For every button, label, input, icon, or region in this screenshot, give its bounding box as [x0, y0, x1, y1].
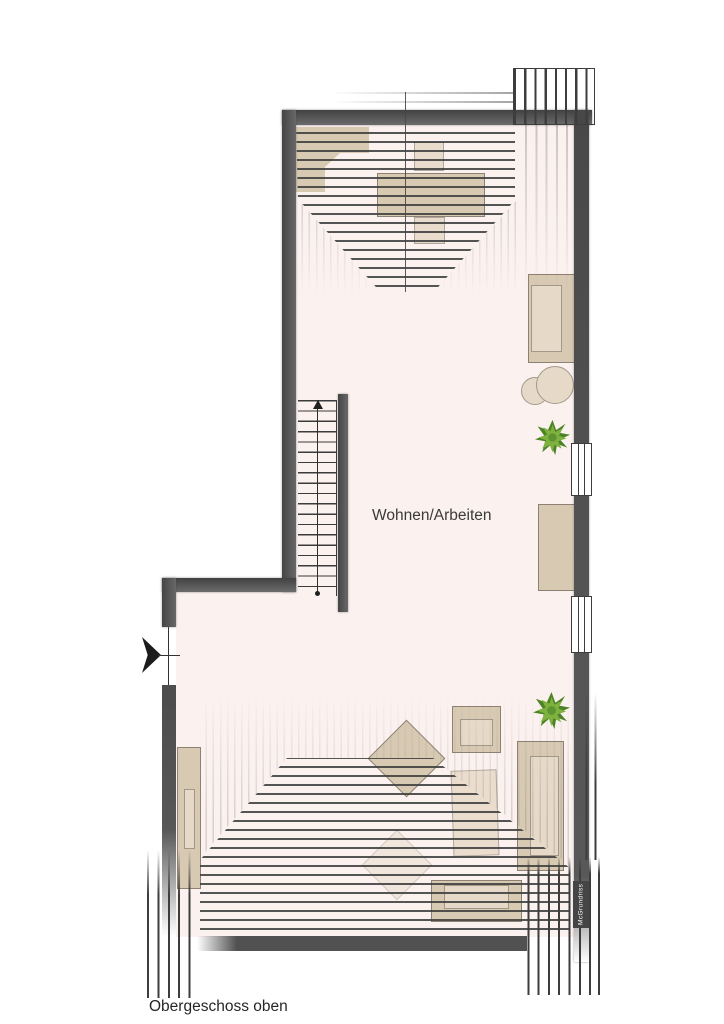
floor-title: Obergeschoss oben [149, 998, 288, 1016]
side-table-large [536, 366, 574, 404]
watermark-label: McGrundriss [578, 884, 585, 925]
plant-icon [534, 419, 571, 456]
floorplan-canvas: McGrundriss Wohnen/Arbeiten Obergeschoss… [0, 0, 724, 1024]
watermark-badge: McGrundriss [573, 881, 589, 928]
stair-start-dot [315, 591, 320, 596]
wall-left-upper [282, 110, 296, 592]
door-leaf-line [168, 627, 169, 685]
window-upper [571, 443, 592, 496]
wall-left-above-door [162, 578, 176, 627]
room-label: Wohnen/Arbeiten [372, 507, 492, 525]
plant-icon [532, 691, 571, 730]
staircase [298, 400, 337, 596]
roof-ridge-line [405, 92, 407, 292]
sideboard [538, 504, 575, 591]
door-tick-line [158, 655, 180, 656]
ghost-line [330, 101, 515, 103]
stair-direction-arrow [313, 400, 323, 409]
wardrobe-door [184, 789, 195, 849]
window-lower [571, 596, 592, 653]
balcony-bottom-left [147, 850, 198, 998]
stair-rail-wall [338, 394, 348, 612]
ghost-line [330, 92, 515, 94]
wall-middle-left [162, 578, 296, 592]
balcony-top-right [513, 68, 595, 125]
balcony-right-strip [578, 692, 600, 860]
wall-bottom [197, 936, 527, 951]
